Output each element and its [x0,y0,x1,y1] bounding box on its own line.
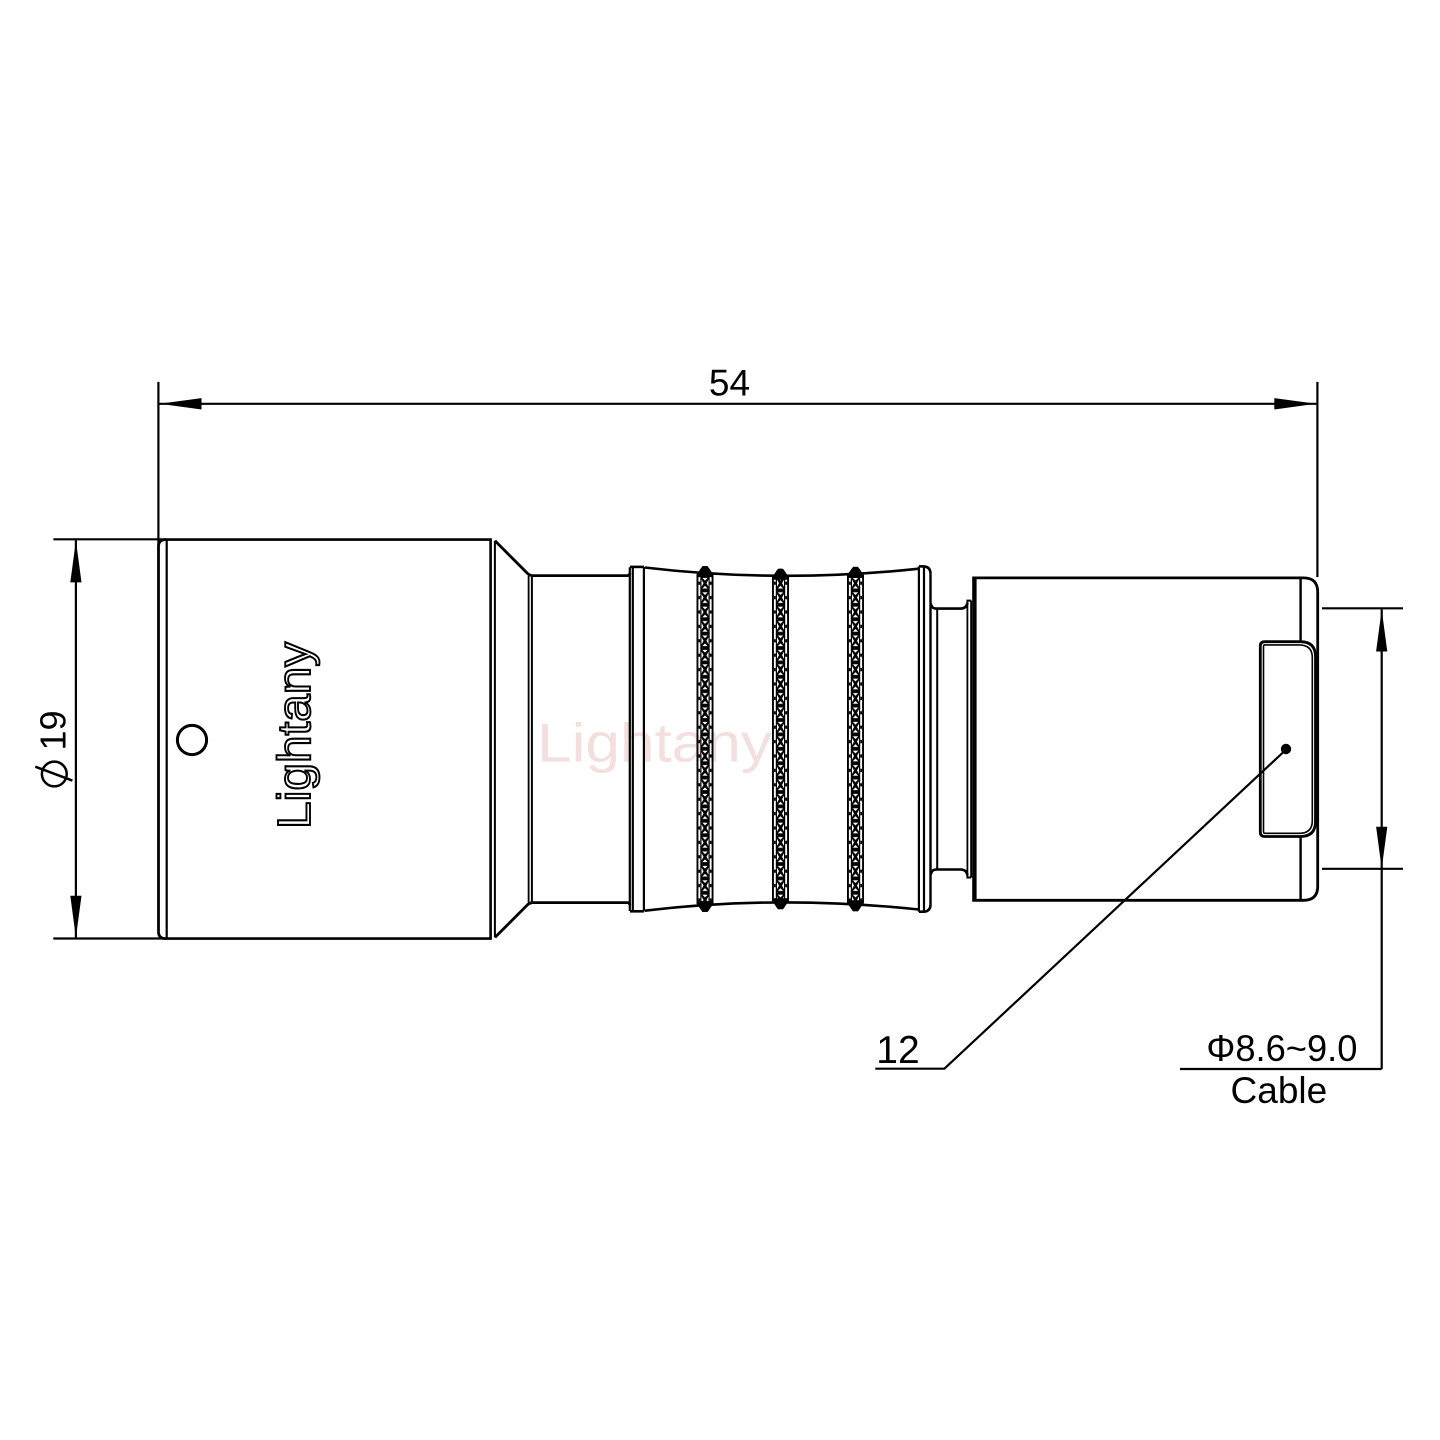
svg-text:19: 19 [33,710,74,750]
svg-text:Lightany: Lightany [268,642,320,829]
svg-text:12: 12 [876,1029,919,1072]
svg-text:54: 54 [709,363,750,404]
svg-text:Cable: Cable [1231,1070,1328,1111]
svg-text:Lightany: Lightany [537,712,773,774]
svg-text:Φ8.6~9.0: Φ8.6~9.0 [1206,1027,1357,1069]
